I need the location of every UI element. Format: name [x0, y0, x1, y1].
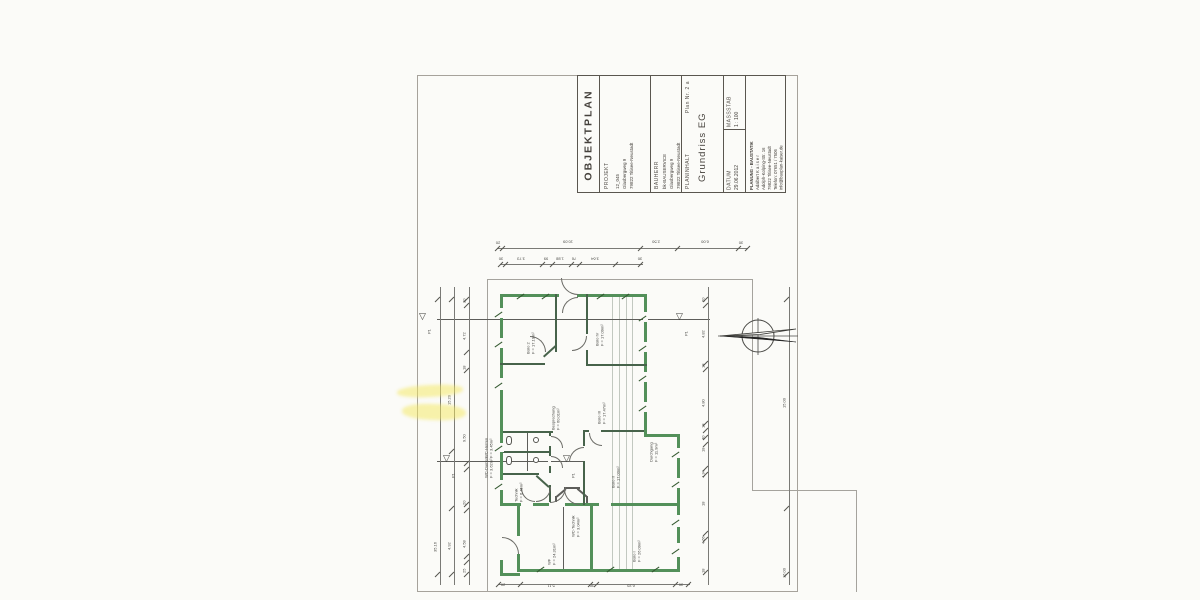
dim-label: 36: [586, 583, 599, 588]
projekt-city: 79822 Titisee-Neustadt: [628, 81, 635, 189]
dim-line: [440, 287, 441, 585]
projection-line: [619, 296, 620, 570]
section-marker-icon: ▽: [563, 454, 570, 463]
datum-label: DATUM: [727, 134, 733, 190]
projekt-number: 12_045: [615, 81, 622, 189]
wall-annex-top: [644, 434, 680, 437]
room-label-buero2: Büro 2F = 17.19m²: [526, 332, 536, 354]
dim-label: 1.88: [554, 256, 567, 261]
projekt-label: PROJEKT: [604, 81, 610, 189]
datum-value: 29.06.2012: [734, 134, 740, 190]
dim-label: 4.92: [447, 542, 452, 550]
dim-label: 6.20: [625, 583, 638, 588]
projection-line: [632, 296, 633, 570]
dim-label: 4.80: [701, 399, 706, 407]
dim-label: 20: [701, 298, 706, 302]
dim-line: [708, 287, 709, 585]
section-marker-icon: ▽: [419, 312, 426, 321]
title-cell-bauherr: BAUHERR bk-BAUSERVICE Glasbergweg 9 7982…: [650, 75, 682, 193]
section-marker-label: P1: [451, 473, 456, 478]
dim-label: 20: [492, 240, 505, 245]
dim-label: 25: [462, 569, 467, 573]
title-cell-objektplan: OBJEKTPLAN: [577, 75, 600, 193]
dim-label: 20: [497, 582, 510, 587]
partition: [583, 430, 585, 505]
section-marker-label: P1: [571, 473, 576, 478]
dim-label: 3.64: [589, 256, 602, 261]
dim-label: 30: [675, 582, 688, 587]
wall-opening: [521, 502, 533, 507]
dim-label: 4.34: [701, 470, 706, 478]
sink-icon: [533, 437, 539, 443]
room-label-buero3: Büro IIIF = 17.47m²: [597, 402, 607, 424]
dim-label: 35.16: [433, 542, 438, 552]
dim-label: 16.00: [782, 568, 787, 578]
bauherr-label: BAUHERR: [654, 81, 660, 189]
dim-line: [497, 248, 748, 249]
section-marker-icon: ▽: [443, 454, 450, 463]
planung-mail: info@bauplan-kaiser.de: [779, 80, 785, 190]
north-arrow-icon: [716, 318, 800, 356]
wall-annex-right: [677, 434, 680, 509]
dim-label: 99: [540, 256, 553, 261]
section-marker-label: P1: [684, 331, 689, 336]
dim-label: 4.66: [701, 536, 706, 544]
dim-label: 15.00: [782, 398, 787, 408]
dim-label: 4.72: [462, 332, 467, 340]
parcel-boundary: [856, 490, 857, 592]
parcel-boundary: [752, 279, 753, 490]
bauherr-name: bk-BAUSERVICE: [662, 81, 669, 189]
dim-label: 2.50: [650, 239, 663, 244]
section-marker-label: P1: [427, 329, 432, 334]
dim-label: 15.20: [447, 395, 452, 405]
partition: [586, 364, 647, 366]
room-label-buero1: Büro IF = 26.09m²: [632, 540, 642, 562]
room-label-wc-technik: WC-TechnikF = 3.04m²: [571, 515, 581, 537]
dim-label: 20: [462, 299, 467, 303]
toilet-icon: [506, 456, 512, 465]
wall-opening: [599, 502, 611, 507]
dim-label: 5.11: [545, 583, 558, 588]
dim-label: 3.73: [515, 256, 528, 261]
dim-label: 18: [701, 448, 706, 452]
parcel-boundary: [487, 279, 752, 280]
plan-sheet-title: OBJEKTPLAN: [578, 76, 599, 194]
projection-line: [612, 296, 613, 570]
room-label-besprechung: BesprechungF = 60.01m²: [551, 406, 561, 430]
dim-label: 30: [495, 256, 508, 261]
planinhalt-label: PLANINHALT: [685, 154, 691, 189]
partition-wc-top: [503, 431, 553, 433]
partition: [500, 363, 545, 365]
lower-partition-line: [563, 506, 564, 570]
dim-label: 18: [701, 364, 706, 368]
toilet-icon: [506, 436, 512, 445]
dim-label: 18: [462, 366, 467, 370]
plan-content-title: Grundriss EG: [697, 81, 708, 189]
title-cell-planinhalt: PLANINHALT Plan Nr. 2 a Grundriss EG: [681, 75, 724, 193]
room-label-wc-herren: WC-HerrenF = 3.45m²: [484, 438, 494, 458]
partition-wc-mid: [503, 451, 549, 453]
room-label-durchgang: DurchgangF = 11.9m²: [649, 442, 659, 462]
dim-label: 20: [462, 501, 467, 505]
partition: [586, 294, 588, 366]
dim-label: 10.09: [562, 239, 575, 244]
dim-line: [454, 287, 455, 585]
dim-label: 30: [634, 256, 647, 261]
dim-line: [469, 287, 470, 585]
dim-label: 76: [568, 256, 581, 261]
dim-label: 40: [701, 436, 706, 440]
wall-lower-divider: [590, 506, 593, 570]
dim-label: 4.82: [701, 330, 706, 338]
section-line: [437, 319, 710, 320]
title-cell-planung: PLANUNG - BAUSTATIK Adalbert K a i s e r…: [745, 75, 786, 193]
room-label-buero4: Büro IVF = 17.09m²: [595, 324, 605, 346]
sink-icon: [533, 457, 539, 463]
room-label-technik: TechnikF = 6.45m²: [514, 483, 524, 502]
dim-label: 6.00: [699, 239, 712, 244]
room-label-wf: WFF = 24.31m²: [547, 543, 557, 565]
wall-stub: [500, 573, 520, 576]
dim-label: 4.58: [462, 540, 467, 548]
plan-number: Plan Nr. 2 a: [685, 81, 691, 113]
parcel-boundary: [752, 490, 856, 491]
projection-line: [626, 296, 627, 570]
scanned-floorplan-sheet: OBJEKTPLAN PROJEKT 12_045 Glasbergweg 9 …: [0, 0, 1200, 600]
dim-label: 18: [701, 502, 706, 506]
wall-opening: [589, 429, 601, 432]
room-label-buero2b: Büro IIF = 17.00m²: [611, 466, 621, 488]
projekt-street: Glasbergweg 9: [621, 81, 628, 189]
section-marker-icon: ▽: [676, 312, 683, 321]
parcel-boundary: [487, 279, 488, 592]
room-label-wc-damen: WC-DamenF = 3.62m²: [484, 457, 494, 478]
bauherr-street: Glasbergweg 9: [668, 81, 675, 189]
title-cell-massstab: MASSSTAB 1 : 100: [723, 75, 746, 130]
dim-label: 30: [735, 240, 748, 245]
highlighter-mark: [402, 403, 467, 421]
partition-technik-top: [503, 473, 539, 475]
title-cell-projekt: PROJEKT 12_045 Glasbergweg 9 79822 Titis…: [599, 75, 651, 193]
massstab-label: MASSSTAB: [727, 80, 733, 127]
dim-label: 18: [701, 569, 706, 573]
dim-label: 18: [701, 424, 706, 428]
dim-label: 9.50: [462, 434, 467, 442]
massstab-value: 1 : 100: [734, 80, 740, 127]
title-cell-datum: DATUM 29.06.2012: [723, 129, 746, 193]
